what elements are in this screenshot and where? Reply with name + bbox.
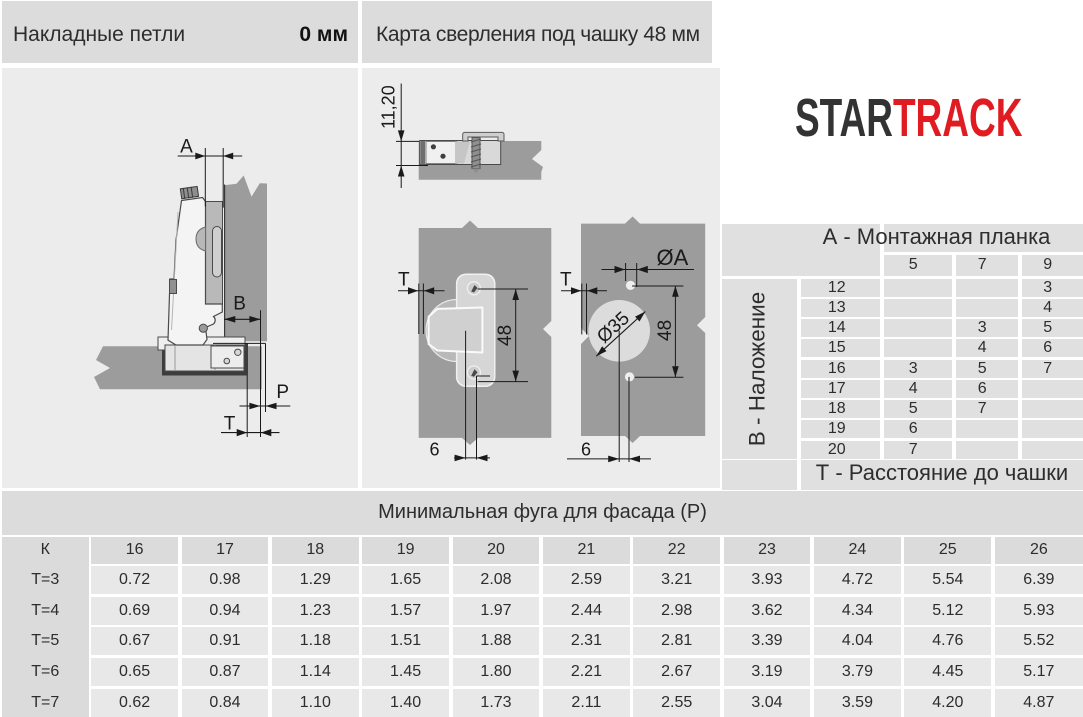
svg-text:ØA: ØA — [657, 245, 689, 270]
svg-text:A: A — [180, 137, 193, 158]
svg-text:Т: Т — [560, 270, 572, 291]
svg-text:6: 6 — [581, 440, 591, 460]
svg-text:6: 6 — [430, 440, 440, 460]
svg-text:11,20: 11,20 — [379, 85, 399, 129]
svg-text:Т: Т — [398, 270, 410, 291]
svg-text:Т: Т — [224, 413, 236, 434]
svg-text:P: P — [276, 382, 289, 403]
svg-text:48: 48 — [655, 320, 676, 341]
svg-text:B: B — [233, 294, 246, 315]
svg-text:48: 48 — [495, 325, 516, 346]
